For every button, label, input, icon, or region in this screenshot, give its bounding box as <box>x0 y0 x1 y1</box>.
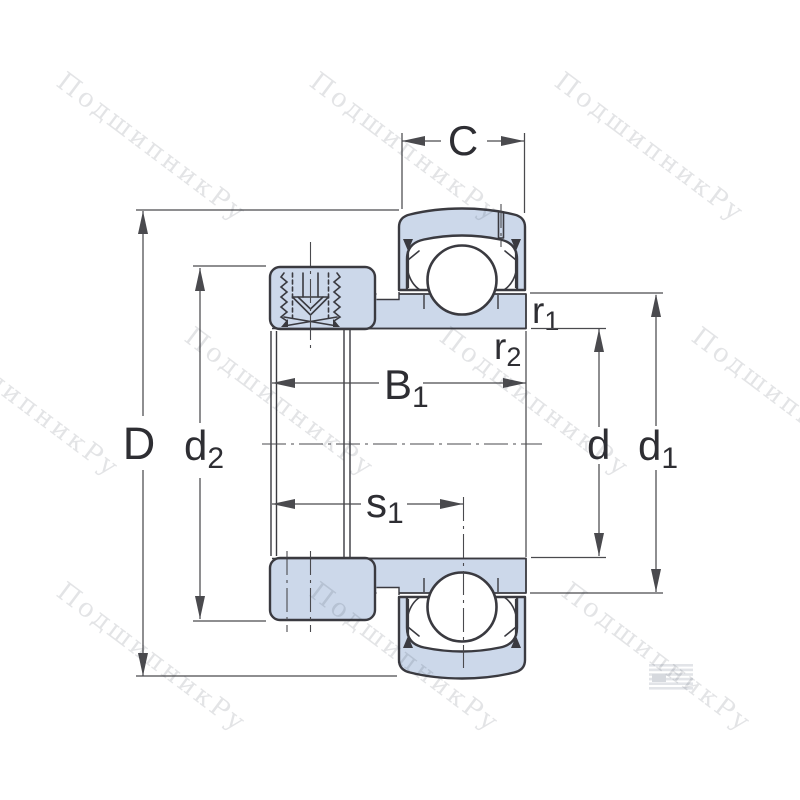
dim-label-d2: d2 <box>184 422 224 475</box>
bearing-ball <box>428 246 497 315</box>
dimension-s1: s1 <box>272 479 463 530</box>
inner-ring-step-cut <box>377 292 400 299</box>
dim-label-B1: B1 <box>384 361 429 414</box>
watermark-text: ПодшипникРу <box>549 67 751 229</box>
bearing-diagram-page: C D d2 B1 s1 r1 r2 d <box>0 0 800 800</box>
dim-label-C: C <box>448 117 478 164</box>
watermark-text: ПодшипникРу <box>556 577 758 739</box>
dimension-d2: d2 <box>184 266 266 621</box>
bearing-technical-drawing: C D d2 B1 s1 r1 r2 d <box>0 0 800 800</box>
watermark-text: ПодшипникРу <box>0 322 125 484</box>
watermark-text: ПодшипникРу <box>51 577 253 739</box>
dim-label-D: D <box>123 418 156 469</box>
dim-label-s1: s1 <box>366 479 404 530</box>
watermark-text: ПодшипникРу <box>434 322 636 484</box>
watermark-text: ПодшипникРу <box>51 67 253 229</box>
dim-label-d1: d1 <box>638 422 678 475</box>
watermark-text: ПодшипникРу <box>686 322 800 484</box>
